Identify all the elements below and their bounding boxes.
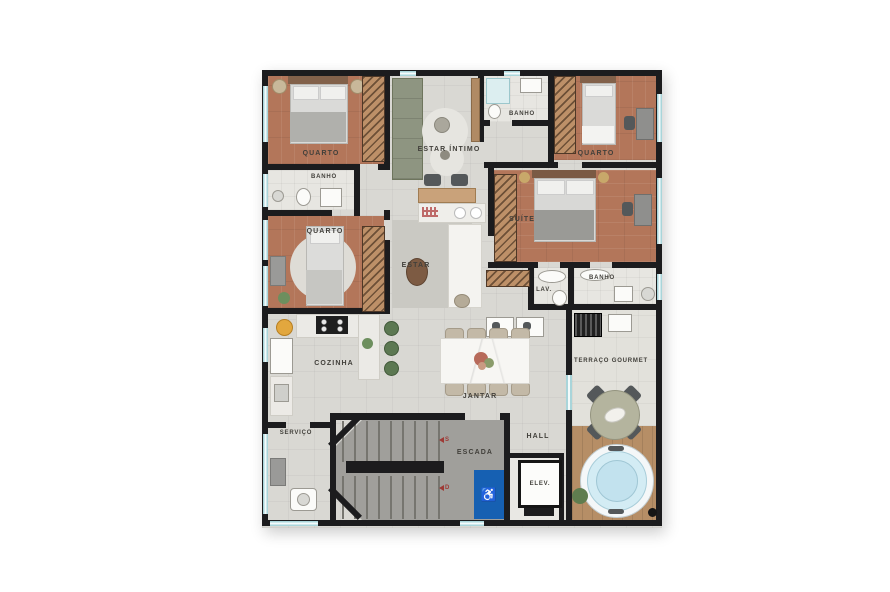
- bed-blanket: [290, 112, 346, 142]
- elevator-cab: ELEV.: [518, 460, 562, 508]
- toilet: [296, 188, 311, 206]
- room-label-quarto-1: QUARTO: [271, 150, 371, 157]
- wall-servico-top-a: [262, 422, 286, 428]
- wheelchair-icon: ♿: [481, 487, 497, 503]
- desk: [418, 188, 476, 203]
- window-banho-right: [657, 274, 662, 300]
- counter-plant: [362, 338, 373, 349]
- window-cozinha: [263, 328, 268, 362]
- closet-corridor: [486, 270, 530, 287]
- bed-pillow: [293, 86, 319, 100]
- wall-q1-bottom-a: [262, 164, 354, 170]
- bed-pillow: [537, 180, 565, 195]
- stair-up-marker: S: [439, 437, 449, 443]
- stair-treads-upper: [342, 421, 446, 462]
- coffee-table: [434, 117, 450, 133]
- bedside-lamp: [598, 172, 609, 183]
- stair-handrail: [346, 461, 444, 473]
- room-label-quarto-2: QUARTO: [546, 150, 646, 157]
- wall-suite-top-b: [582, 162, 656, 168]
- arrow-left-icon: [439, 437, 444, 443]
- bed-blanket: [306, 270, 342, 304]
- room-label-lav: LAV.: [520, 287, 568, 293]
- window-quarto-3-a: [263, 220, 268, 260]
- arrow-left-icon: [439, 485, 444, 491]
- wall-q3-right-a: [384, 210, 390, 220]
- flower-centerpiece: [478, 362, 486, 370]
- window-servico: [263, 434, 268, 514]
- wall-terrace-left-a: [566, 310, 572, 375]
- bed-headboard: [288, 76, 348, 84]
- window-quarto-3-b: [263, 266, 268, 306]
- window-banho-top: [504, 71, 520, 76]
- window-quarto-2: [657, 94, 662, 142]
- shower-drain: [641, 287, 655, 301]
- room-label-escada: ESCADA: [445, 449, 505, 456]
- accessible-area: ♿: [474, 470, 504, 519]
- room-label-banho-top: BANHO: [492, 111, 552, 117]
- plant: [278, 292, 290, 304]
- shower-box: [486, 78, 510, 104]
- sink: [520, 78, 542, 93]
- window-banho-left: [263, 174, 268, 207]
- room-label-terraco: TERRAÇO GOURMET: [561, 358, 661, 364]
- wall-q3-top-stub: [354, 210, 360, 216]
- desk-chair: [424, 174, 441, 186]
- elevator-shaft-wall-top: [510, 453, 564, 458]
- bedside-lamp: [519, 172, 530, 183]
- terrace-sink: [608, 314, 632, 332]
- hot-tub-headrest: [608, 446, 624, 451]
- stair-up-letter: S: [445, 437, 449, 443]
- bed-headboard: [580, 76, 616, 83]
- room-label-estar-intimo: ESTAR ÍNTIMO: [399, 146, 499, 153]
- wall-stair-right: [504, 413, 510, 525]
- dresser: [270, 256, 286, 286]
- wall-stair-top-a: [330, 413, 465, 420]
- plant: [572, 488, 588, 504]
- window-suite: [657, 178, 662, 244]
- stair-down-marker: D: [439, 485, 449, 491]
- bed-pillow: [566, 180, 594, 195]
- wall-suite-bottom-b: [560, 262, 590, 268]
- kitchen-sink-basin: [274, 384, 289, 402]
- desk: [634, 194, 652, 226]
- shower-head: [272, 190, 284, 202]
- sink: [538, 270, 566, 283]
- wall-banholeft-bottom: [262, 210, 332, 216]
- floor-plan: ♿ S D ELEV.: [262, 70, 662, 528]
- door-pivot-dot: [648, 508, 657, 517]
- fridge: [270, 338, 293, 374]
- bed-pillow: [585, 85, 613, 97]
- decor-bowl: [454, 207, 466, 219]
- room-label-banho-right: BANHO: [578, 275, 626, 281]
- shelf: [270, 458, 286, 486]
- wall-suite-bottom-c: [612, 262, 656, 268]
- window-servico-bottom: [270, 521, 318, 526]
- bed-pillow: [320, 86, 346, 100]
- window-quarto-1: [263, 86, 268, 142]
- vanity: [614, 286, 633, 302]
- stair-down-letter: D: [445, 485, 449, 491]
- room-label-estar: ESTAR: [386, 262, 446, 269]
- bar-stool: [384, 341, 399, 356]
- elevator-counterweight: [524, 508, 554, 516]
- desk-chair: [451, 174, 468, 186]
- hot-tub-seat: [596, 460, 638, 502]
- cooktop: [316, 316, 348, 334]
- wall-q1-bottom-b: [378, 164, 390, 170]
- hot-tub-headrest: [608, 509, 624, 514]
- desk-chair: [624, 116, 635, 130]
- sofa: [392, 78, 423, 180]
- desk: [636, 108, 654, 140]
- bar-stool: [384, 321, 399, 336]
- bed-headboard: [532, 170, 596, 178]
- grill: [574, 313, 602, 337]
- room-label-quarto-3: QUARTO: [275, 228, 375, 235]
- wall-servico-top-b: [310, 422, 330, 428]
- room-label-suite: SUÍTE: [472, 216, 572, 223]
- wall-stair-left: [330, 413, 336, 525]
- room-label-servico: SERVIÇO: [262, 430, 330, 436]
- room-label-cozinha: COZINHA: [284, 360, 384, 367]
- bed-blanket: [582, 126, 614, 143]
- wall-terrace-left-b: [566, 410, 572, 520]
- wine-rack: [422, 207, 438, 217]
- room-label-hall: HALL: [508, 433, 568, 440]
- fruit-bowl: [276, 319, 293, 336]
- sink: [320, 188, 342, 207]
- wall-lav-banho-divider: [568, 268, 574, 304]
- room-label-elevador: ELEV.: [530, 481, 551, 487]
- nightstand: [272, 79, 287, 94]
- laundry-tub-basin: [297, 493, 310, 506]
- wall-banholeft-right: [354, 164, 360, 216]
- wall-terrace-top: [528, 304, 656, 310]
- glass-door-terraco: [566, 375, 572, 410]
- wardrobe: [554, 76, 576, 154]
- wardrobe: [362, 226, 385, 312]
- door-stair-exit: [460, 521, 484, 526]
- room-label-banho-left: BANHO: [274, 174, 374, 180]
- pouf: [454, 294, 470, 308]
- window-estar-intimo: [400, 71, 416, 76]
- desk-chair: [622, 202, 633, 216]
- wall-suite-top-a: [484, 162, 558, 168]
- bed-blanket: [534, 210, 594, 240]
- tv-panel: [471, 78, 480, 142]
- room-label-jantar: JANTAR: [430, 393, 530, 400]
- wall-banhotop-bottom-a: [484, 120, 490, 126]
- bar-stool: [384, 361, 399, 376]
